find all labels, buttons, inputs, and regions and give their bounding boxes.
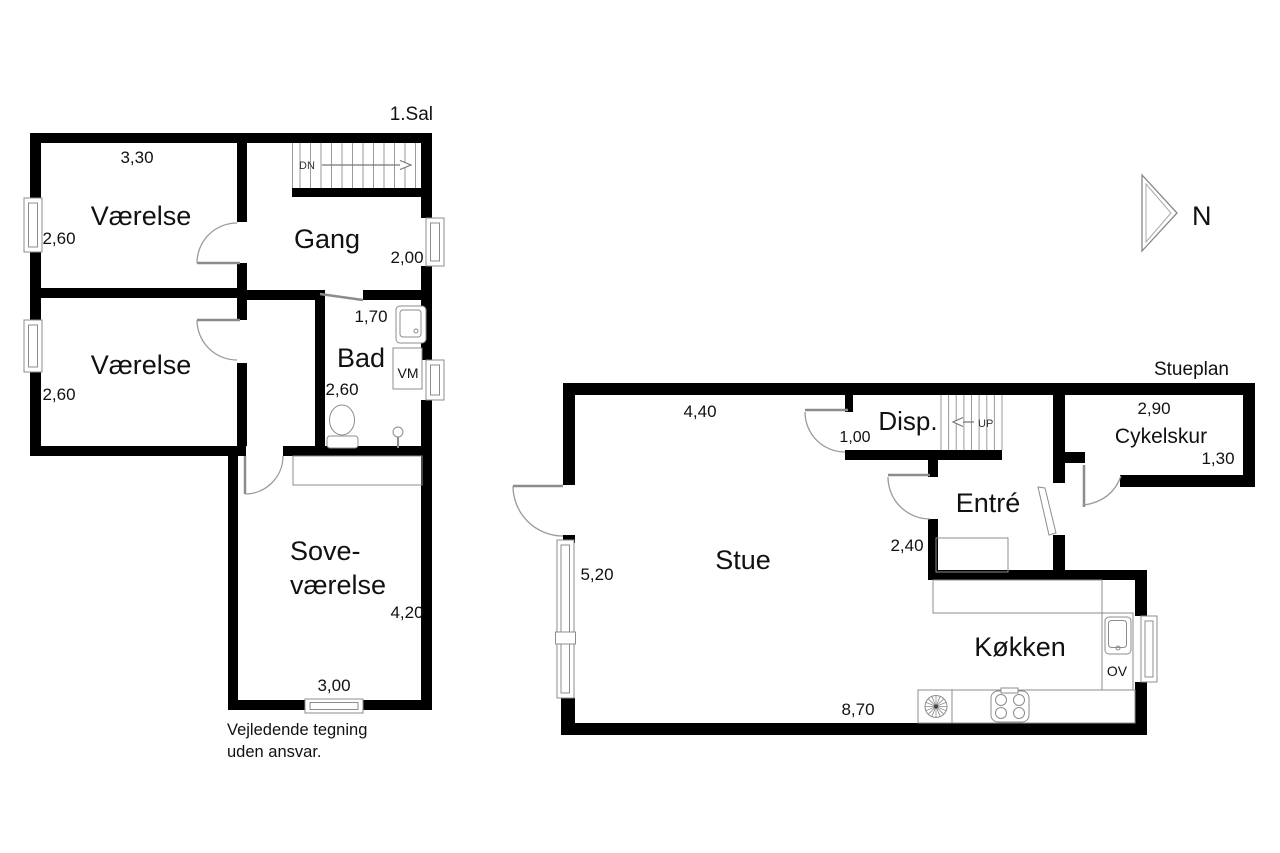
entrance-door bbox=[1038, 487, 1056, 535]
wall-segment bbox=[1135, 577, 1147, 616]
upper-staircase: DN bbox=[293, 143, 416, 188]
kitchen-sink bbox=[1105, 617, 1131, 654]
dim-label: 8,70 bbox=[841, 700, 874, 719]
oven-cabinet: OV bbox=[1102, 613, 1133, 690]
door bbox=[197, 223, 240, 263]
entry-closet bbox=[936, 538, 1008, 572]
wall-segment bbox=[30, 133, 41, 198]
dim-label: 1,00 bbox=[839, 429, 870, 446]
wall-segment bbox=[238, 446, 246, 456]
dim-label: 2,60 bbox=[325, 380, 358, 399]
kitchen-counter-bottom bbox=[918, 688, 1135, 723]
dim-label: 2,60 bbox=[42, 229, 75, 248]
wall-segment bbox=[1053, 383, 1065, 483]
ground-staircase: UP bbox=[941, 395, 1002, 450]
dim-label: 2,60 bbox=[42, 385, 75, 404]
wall-segment bbox=[561, 723, 1147, 735]
dim-label: 2,00 bbox=[390, 248, 423, 267]
bathroom-fixtures: VM bbox=[327, 306, 426, 448]
wall-segment bbox=[237, 143, 247, 222]
door bbox=[513, 486, 563, 536]
room-label-vaerelse1: Værelse bbox=[91, 201, 192, 231]
room-label-vaerelse2: Værelse bbox=[91, 350, 192, 380]
room-label-stue: Stue bbox=[715, 545, 771, 575]
stairs-down-arrow bbox=[322, 161, 411, 170]
window bbox=[24, 320, 42, 372]
ground-floor-title: Stueplan bbox=[1154, 359, 1229, 380]
wall-segment bbox=[30, 133, 432, 143]
dim-label: 5,20 bbox=[580, 565, 613, 584]
window bbox=[556, 540, 576, 698]
round-sink bbox=[925, 696, 947, 718]
door bbox=[197, 320, 240, 360]
kitchen-counter-top bbox=[933, 580, 1102, 613]
wall-segment bbox=[563, 395, 575, 485]
wall-segment bbox=[237, 363, 247, 446]
bathroom-sink bbox=[396, 306, 426, 343]
disclaimer: Vejledende tegning uden ansvar. bbox=[227, 721, 367, 761]
room-label-sovevaerelse-1: Sove- bbox=[290, 536, 361, 566]
dim-label: 2,40 bbox=[890, 536, 923, 555]
wall-segment bbox=[228, 446, 238, 710]
door bbox=[1084, 465, 1121, 507]
stairs-down-label: DN bbox=[299, 160, 315, 172]
wall-segment bbox=[1120, 475, 1255, 487]
room-label-gang: Gang bbox=[294, 224, 360, 254]
wall-segment bbox=[363, 290, 432, 300]
room-label-entre: Entré bbox=[956, 488, 1021, 518]
window bbox=[305, 699, 363, 713]
window bbox=[426, 360, 444, 400]
wall-segment bbox=[30, 252, 41, 320]
room-label-koekken: Køkken bbox=[974, 632, 1066, 662]
floor-plan-page: DN bbox=[0, 0, 1280, 853]
stairs-up-label: UP bbox=[978, 418, 993, 430]
dim-label: 1,70 bbox=[354, 307, 387, 326]
wall-segment bbox=[228, 700, 307, 710]
north-arrow-triangle bbox=[1142, 175, 1177, 251]
wall-segment bbox=[292, 188, 422, 197]
wall-segment bbox=[1053, 535, 1065, 580]
room-label-bad: Bad bbox=[337, 343, 385, 373]
room-label-disp: Disp. bbox=[878, 406, 937, 436]
washing-machine: VM bbox=[393, 348, 422, 389]
shower-drain bbox=[393, 427, 403, 448]
dim-label: 4,20 bbox=[390, 603, 423, 622]
wall-segment bbox=[30, 446, 238, 456]
window bbox=[1141, 616, 1157, 682]
washing-machine-label: VM bbox=[398, 365, 419, 381]
ground-doors bbox=[513, 410, 1121, 536]
ground-floor-labels: Stueplan 4,40 Stue 5,20 Disp. 1,00 Entré… bbox=[580, 359, 1234, 719]
disclaimer-line-1: Vejledende tegning bbox=[227, 721, 367, 739]
dim-label: 3,00 bbox=[317, 676, 350, 695]
stove bbox=[991, 688, 1029, 722]
dim-label: 2,90 bbox=[1137, 399, 1170, 418]
upper-floor-plan: DN bbox=[24, 104, 444, 713]
north-arrow: N bbox=[1142, 175, 1212, 251]
wall-segment bbox=[1135, 682, 1147, 735]
window bbox=[426, 218, 444, 266]
wall-segment bbox=[30, 288, 247, 298]
bedroom-closet bbox=[293, 456, 422, 485]
wall-segment bbox=[315, 290, 325, 456]
wall-segment bbox=[237, 290, 320, 300]
upper-floor-title: 1.Sal bbox=[390, 104, 433, 125]
sliding-door bbox=[320, 294, 363, 300]
door bbox=[245, 456, 283, 494]
floor-plan-drawing: DN bbox=[0, 0, 1280, 853]
wall-segment bbox=[421, 133, 432, 218]
dim-label: 3,30 bbox=[120, 148, 153, 167]
room-label-cykelskur: Cykelskur bbox=[1115, 425, 1207, 448]
wall-segment bbox=[563, 383, 1255, 395]
wall-segment bbox=[30, 372, 41, 446]
dim-label: 4,40 bbox=[683, 402, 716, 421]
ground-floor-plan: UP bbox=[513, 359, 1255, 735]
door bbox=[888, 475, 930, 519]
room-label-sovevaerelse-2: værelse bbox=[290, 570, 386, 600]
dim-label: 1,30 bbox=[1201, 449, 1234, 468]
ground-windows bbox=[556, 540, 1158, 698]
toilet bbox=[327, 405, 358, 448]
wall-segment bbox=[1065, 452, 1085, 463]
wall-segment bbox=[845, 450, 1002, 460]
north-label: N bbox=[1192, 201, 1212, 231]
oven-label: OV bbox=[1107, 663, 1128, 679]
disclaimer-line-2: uden ansvar. bbox=[227, 743, 322, 761]
window bbox=[24, 198, 42, 252]
wall-segment bbox=[1243, 383, 1255, 487]
